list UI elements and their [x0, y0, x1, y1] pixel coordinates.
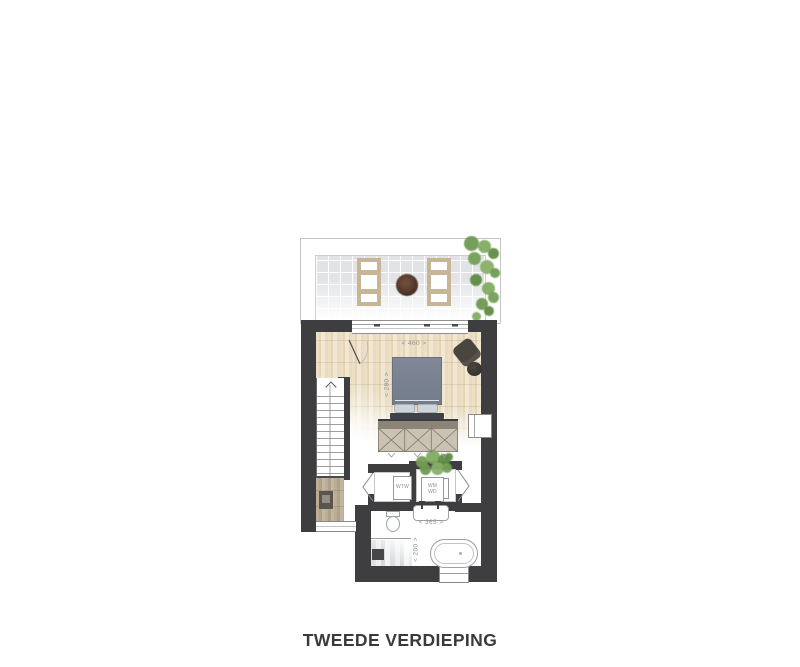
meter-cabinet-icon [319, 491, 333, 509]
wall-segment [344, 377, 350, 480]
planter-icon [396, 274, 418, 296]
staircase-icon [316, 378, 344, 478]
side-table-icon [467, 362, 482, 376]
wtw-unit: WTW [393, 476, 412, 500]
shower-icon [372, 549, 384, 560]
dim-shower-width: < 200 > [413, 535, 420, 565]
double-bed-icon [392, 357, 442, 405]
toilet-icon [386, 516, 400, 532]
dim-bedroom-depth: < 280 > [384, 369, 391, 401]
climbing-plant-icon [458, 234, 506, 322]
wall-segment [301, 320, 352, 332]
wardrobe-counter [378, 419, 458, 428]
stair-treads [317, 390, 344, 475]
shower-screen [371, 538, 411, 539]
wall-segment [456, 494, 462, 508]
wtw-label: WTW [394, 485, 411, 491]
closet-door-leaf [443, 478, 449, 499]
skylight-mullion [431, 270, 447, 275]
bathtub-icon [430, 539, 478, 568]
wall-segment [369, 464, 414, 472]
wall-segment [355, 505, 371, 582]
pillow-icon [417, 404, 438, 413]
wall-segment [481, 320, 497, 582]
houseplant-icon [412, 448, 454, 478]
wall-segment [456, 461, 462, 470]
skylight-icon [427, 258, 451, 306]
floor-plan: WTW WM WD < 460 > < 280 > < 365 > < 200 … [0, 0, 800, 667]
skylight-mullion [361, 289, 377, 294]
washer-dryer-unit: WM WD [421, 477, 444, 502]
sliding-glass-door-icon [352, 320, 468, 334]
page-title: TWEEDE VERDIEPING [0, 630, 800, 651]
dim-bathroom-width: < 365 > [411, 519, 451, 526]
landing-window-icon [316, 521, 356, 532]
dim-bedroom-width: < 460 > [389, 340, 439, 347]
wall-segment [355, 566, 497, 582]
window-icon [468, 414, 492, 438]
skylight-mullion [431, 289, 447, 294]
skylight-icon [357, 258, 381, 306]
pillow-icon [394, 404, 415, 413]
skylight-mullion [361, 270, 377, 275]
wd-label: WD [422, 490, 443, 496]
wall-segment [301, 320, 316, 532]
